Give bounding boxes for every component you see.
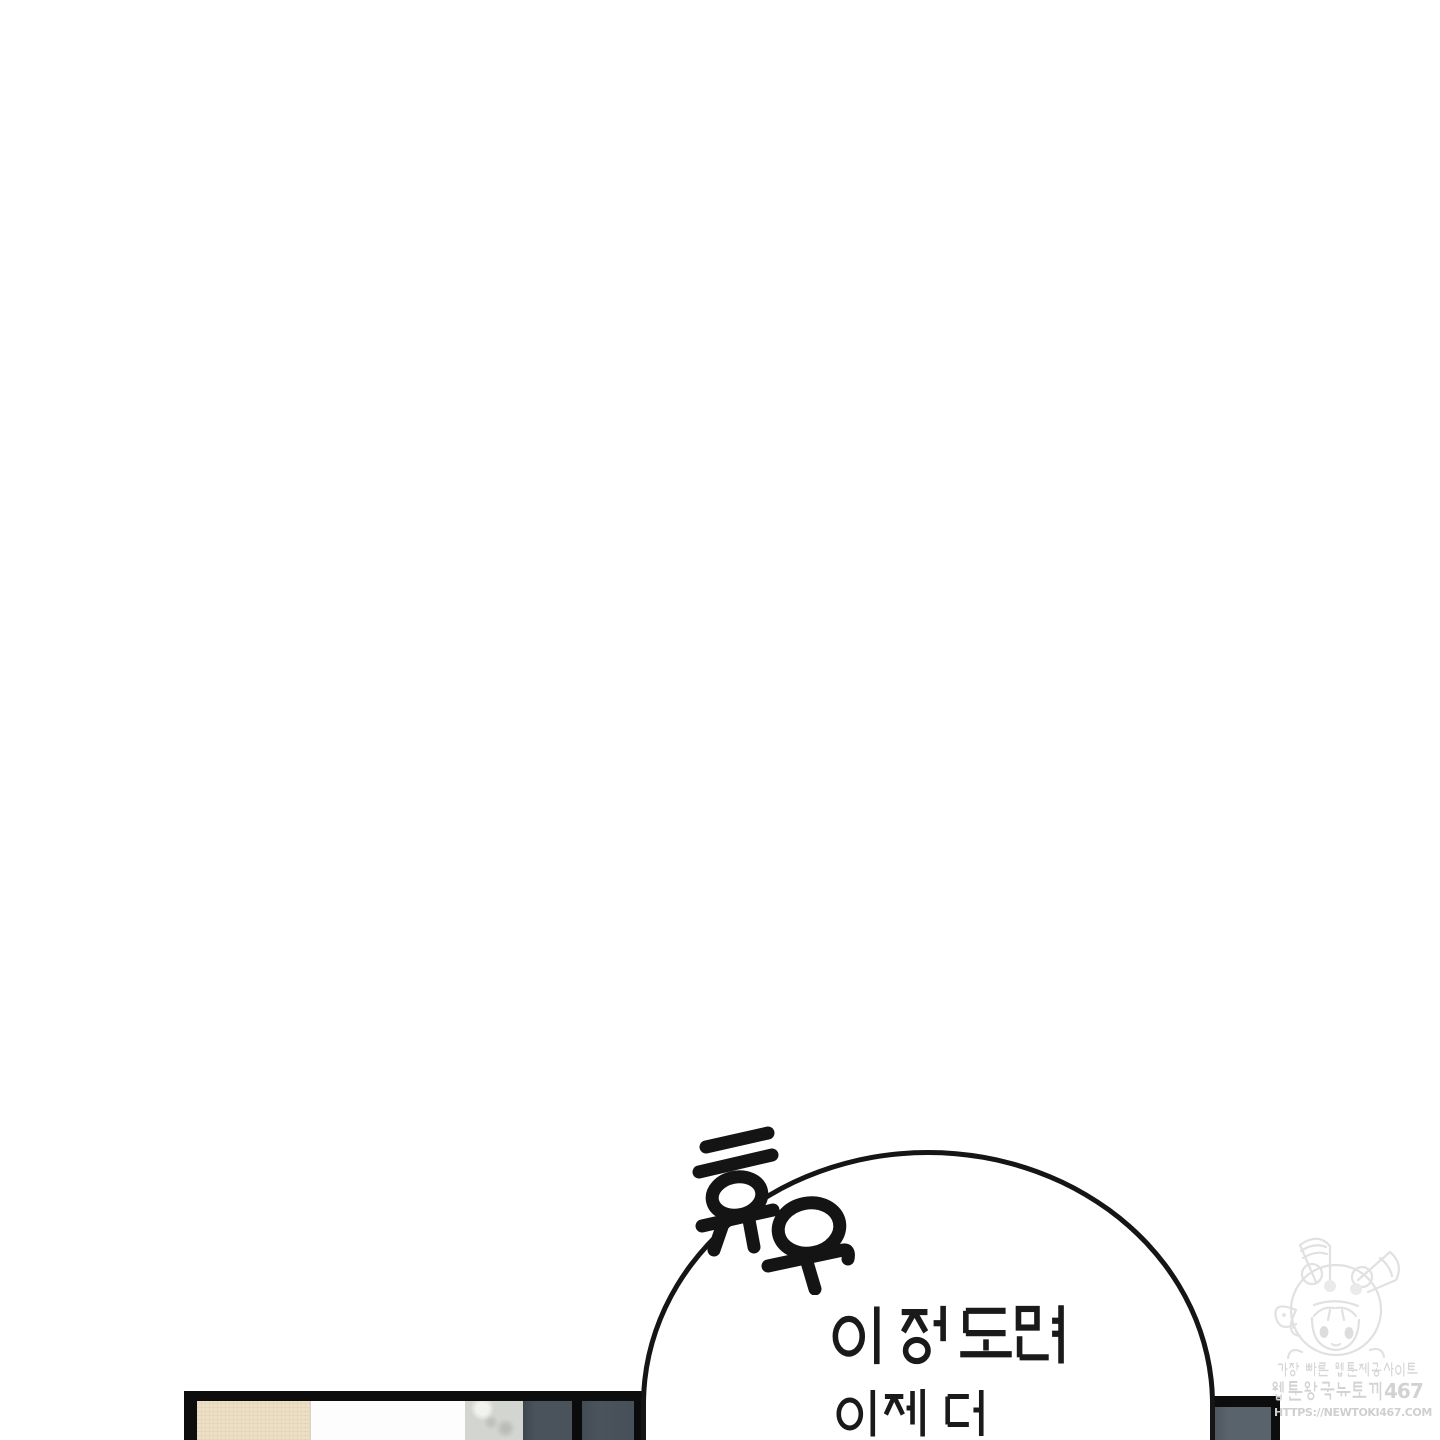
watermark-line2 — [1272, 1381, 1384, 1401]
cabinet-panel-marble — [465, 1401, 523, 1440]
speech-bubble-text — [820, 1295, 1090, 1440]
webtoon-page: 휴우 이 정도면 이제 더 가장 빠른 웹툰제공사이트 웹툰왕국뉴토끼467 — [0, 0, 1440, 1440]
cabinet-panel-divider-1 — [572, 1401, 582, 1440]
sfx-sigh-text — [680, 1115, 870, 1295]
cabinet-panel-slate-1 — [523, 1401, 572, 1440]
left-cabinet-left-frame — [184, 1391, 197, 1440]
watermark-line2-digits: 467 — [1384, 1380, 1423, 1402]
cabinet-panel-white — [310, 1401, 466, 1440]
watermark-line1 — [1277, 1362, 1419, 1377]
cabinet-panel-slate-2 — [582, 1401, 634, 1440]
watermark-url: HTTPS://NEWTOKI467.COM — [1274, 1406, 1432, 1419]
cabinet-panel-beige — [197, 1401, 310, 1440]
